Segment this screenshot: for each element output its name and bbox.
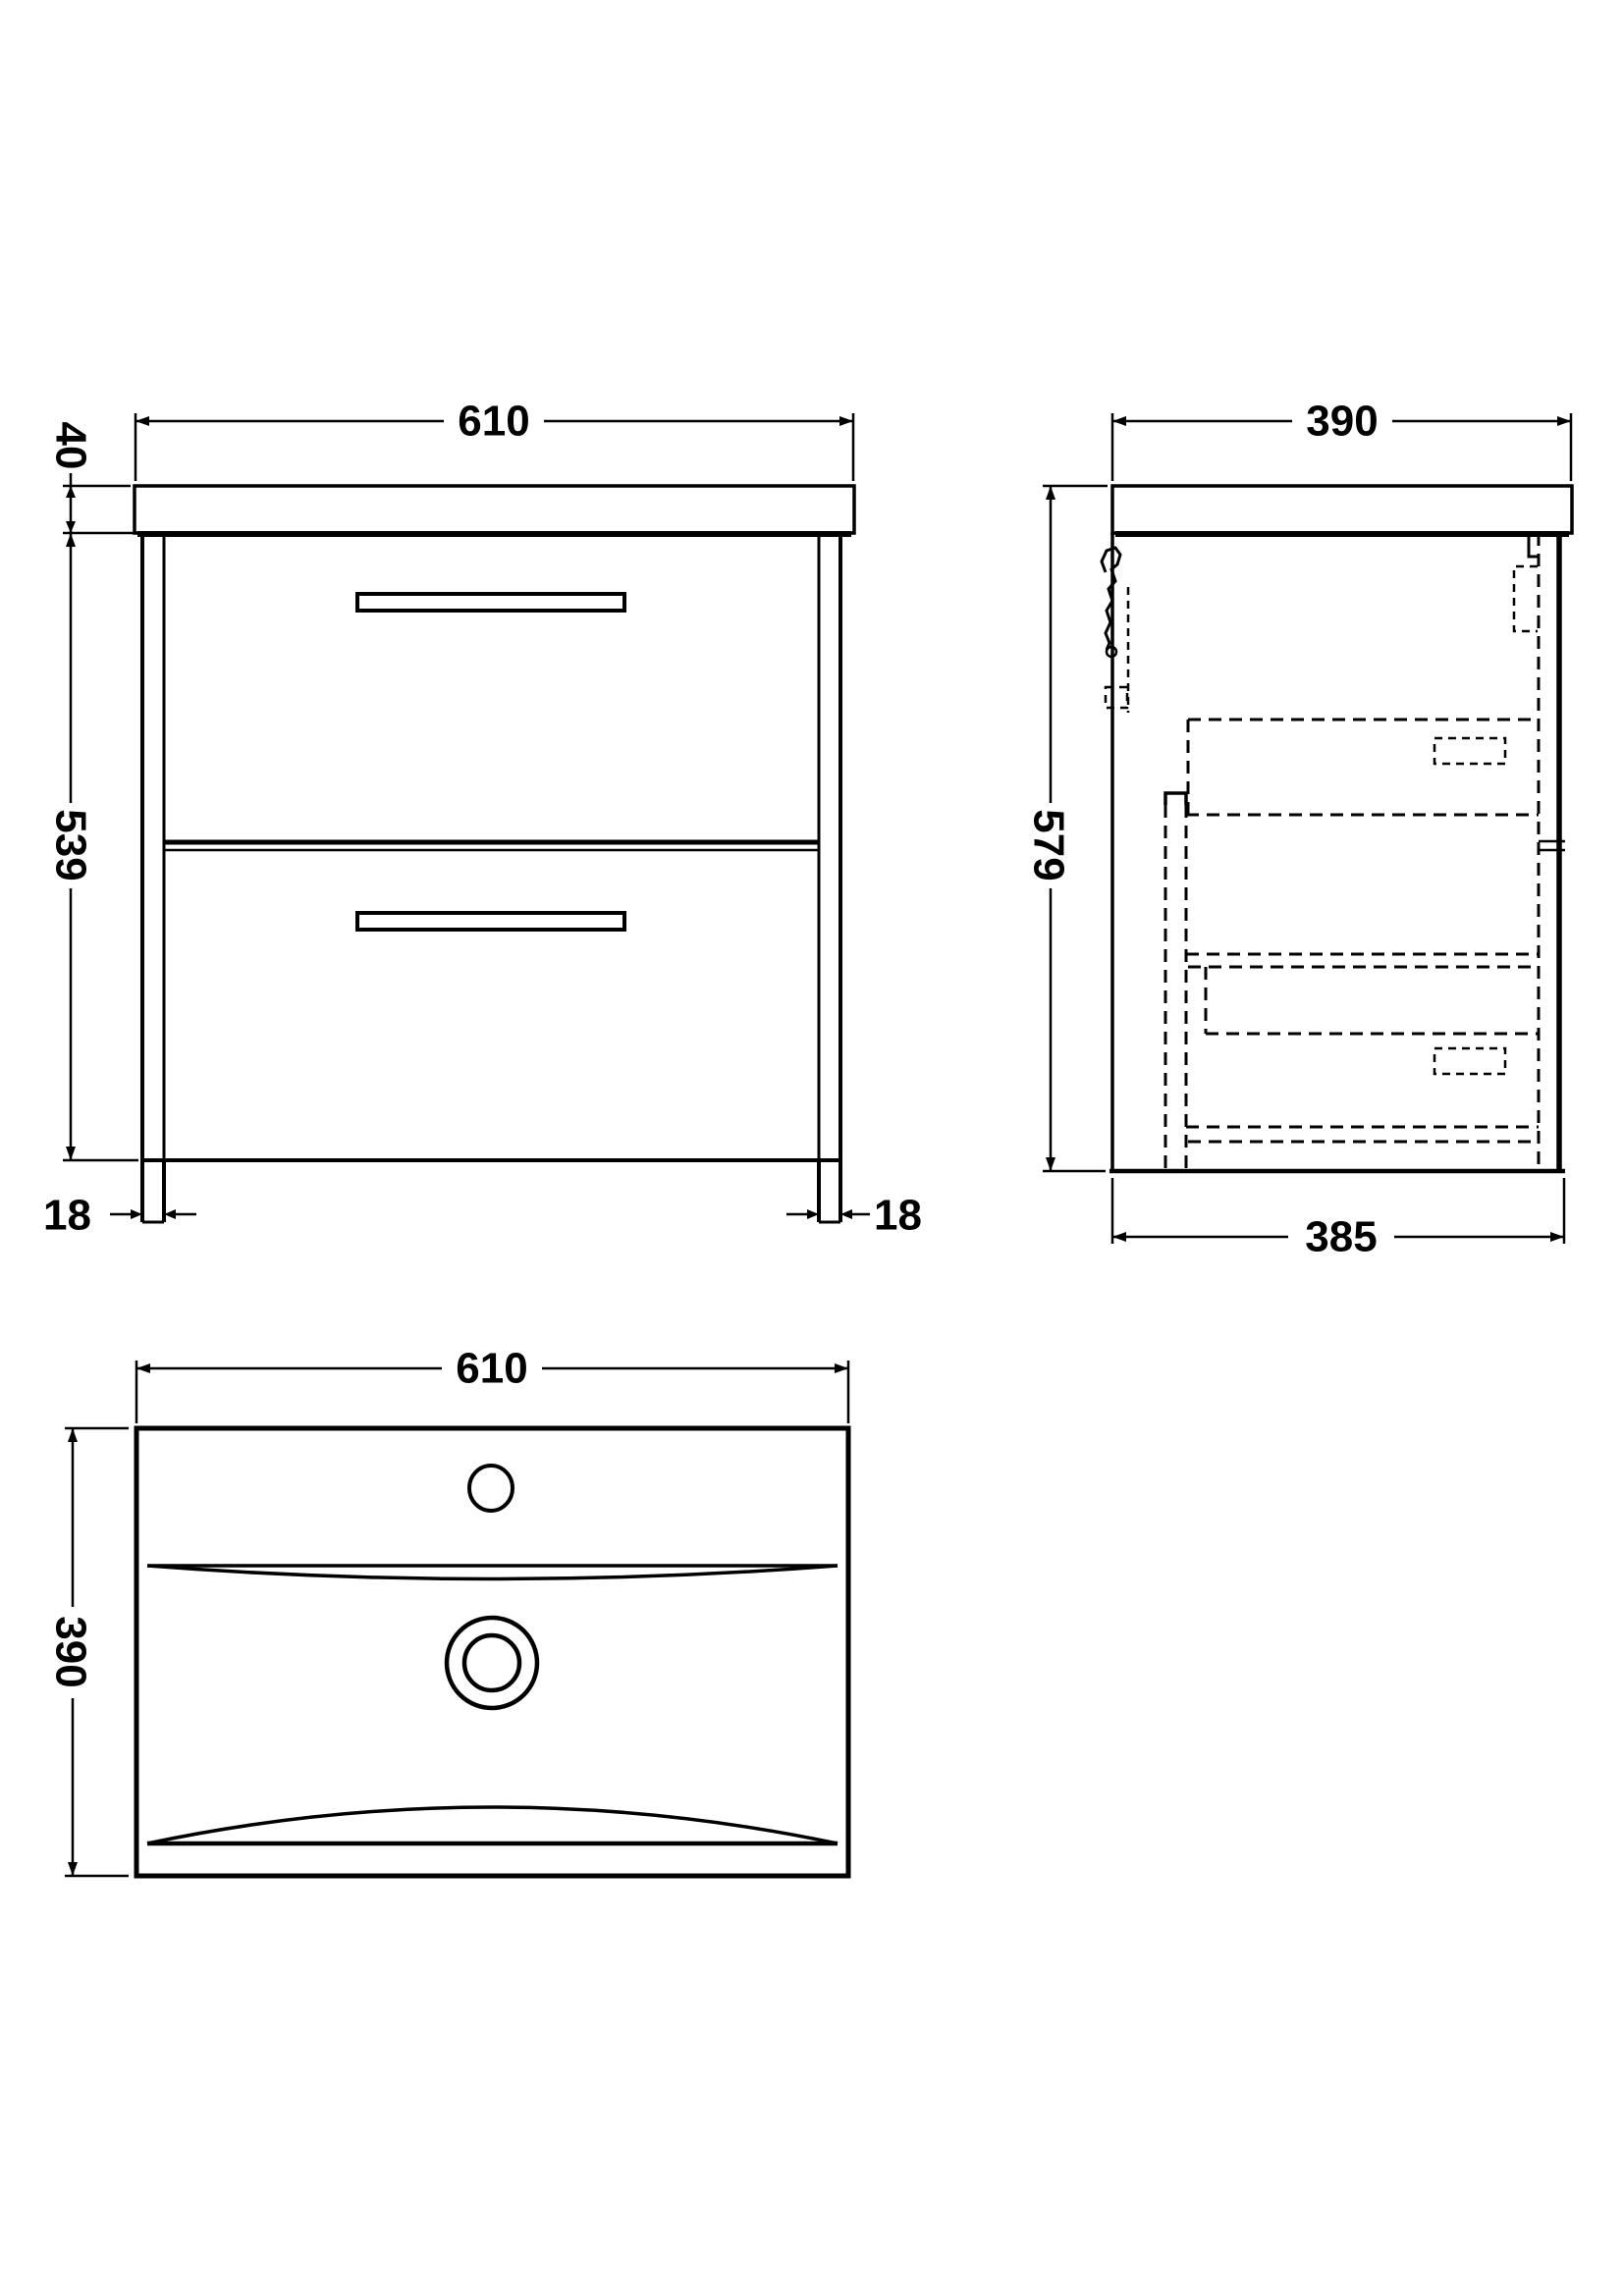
side-worktop-outline xyxy=(1112,486,1572,533)
plan-width-dimension: 610 xyxy=(136,1345,848,1424)
side-base-dimension: 385 xyxy=(1112,1178,1564,1261)
side-back-panel xyxy=(1165,793,1186,1171)
side-height-dimension: 579 xyxy=(1025,486,1109,1171)
front-panel-right-dimension: 18 xyxy=(786,1192,922,1240)
front-width-dimension: 610 xyxy=(135,398,853,482)
bowl-back-edge xyxy=(147,1566,838,1579)
upper-drawer-handle xyxy=(357,594,624,611)
dim-front-height-label: 539 xyxy=(47,809,95,881)
plan-view: 610 390 xyxy=(47,1345,849,1877)
dim-side-height-label: 579 xyxy=(1025,809,1073,881)
drawing-sheet: 610 40 539 xyxy=(0,0,1623,2296)
dim-side-base-label: 385 xyxy=(1305,1213,1377,1261)
wall-bracket-right xyxy=(1514,533,1538,631)
side-view: 390 579 xyxy=(1025,398,1573,1261)
side-depth-dimension: 390 xyxy=(1112,398,1571,482)
side-lower-drawer xyxy=(1186,954,1539,1142)
dim-front-width-label: 610 xyxy=(458,398,529,446)
dim-panel-right-label: 18 xyxy=(874,1192,922,1240)
front-worktop-outline xyxy=(135,486,854,533)
front-legs xyxy=(142,1160,840,1222)
waste-hole xyxy=(447,1618,537,1708)
tap-hole xyxy=(469,1466,513,1511)
technical-drawing: 610 40 539 xyxy=(0,0,1623,2296)
front-height-dimension: 539 xyxy=(47,533,139,1160)
plan-depth-dimension: 390 xyxy=(47,1428,130,1876)
dim-plan-width-label: 610 xyxy=(456,1345,527,1393)
dim-side-depth-label: 390 xyxy=(1306,398,1378,446)
side-upper-drawer xyxy=(1186,720,1539,815)
dim-front-worktop-label: 40 xyxy=(47,422,95,470)
front-worktop-dimension: 40 xyxy=(47,422,139,533)
front-panel-left-dimension: 18 xyxy=(43,1192,196,1240)
lower-drawer-handle xyxy=(357,913,624,930)
front-view: 610 40 539 xyxy=(43,398,922,1240)
wall-bracket-left xyxy=(1102,548,1128,713)
front-cabinet-outline xyxy=(142,533,840,1160)
dim-panel-left-label: 18 xyxy=(43,1192,91,1240)
dim-plan-depth-label: 390 xyxy=(47,1616,95,1687)
bowl-front-edge xyxy=(147,1807,838,1843)
